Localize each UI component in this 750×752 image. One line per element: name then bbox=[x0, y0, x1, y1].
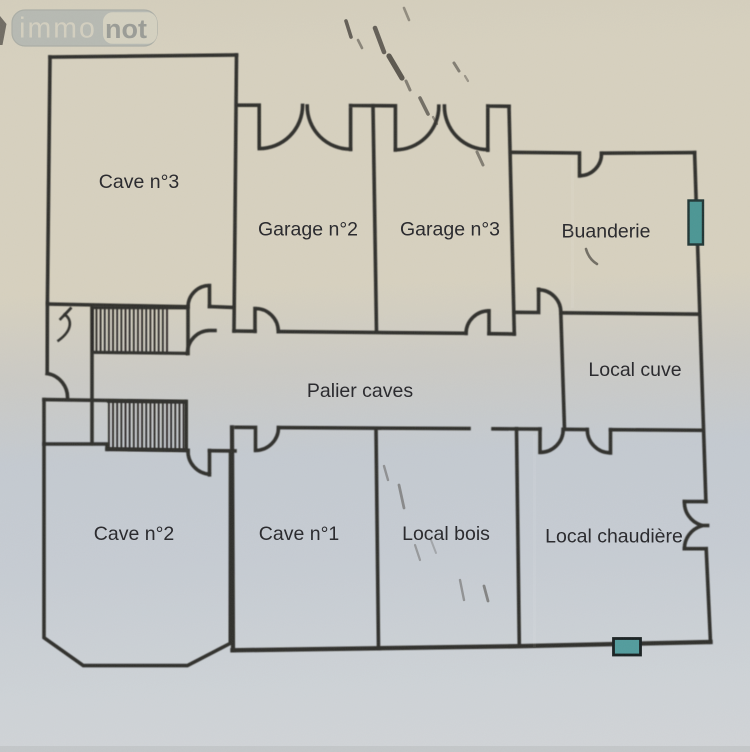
svg-text:Local bois: Local bois bbox=[402, 523, 490, 545]
svg-text:Garage n°3: Garage n°3 bbox=[400, 219, 500, 241]
svg-text:Local chaudière: Local chaudière bbox=[545, 526, 683, 548]
svg-text:Buanderie: Buanderie bbox=[562, 221, 651, 243]
svg-text:Cave n°1: Cave n°1 bbox=[259, 523, 339, 545]
svg-text:Palier caves: Palier caves bbox=[307, 380, 413, 402]
svg-text:Cave n°2: Cave n°2 bbox=[94, 523, 174, 545]
svg-text:not: not bbox=[105, 14, 147, 44]
svg-text:immo: immo bbox=[19, 13, 97, 45]
svg-text:Cave n°3: Cave n°3 bbox=[99, 171, 179, 193]
svg-text:Local cuve: Local cuve bbox=[588, 359, 681, 381]
svg-text:Garage n°2: Garage n°2 bbox=[258, 219, 358, 241]
